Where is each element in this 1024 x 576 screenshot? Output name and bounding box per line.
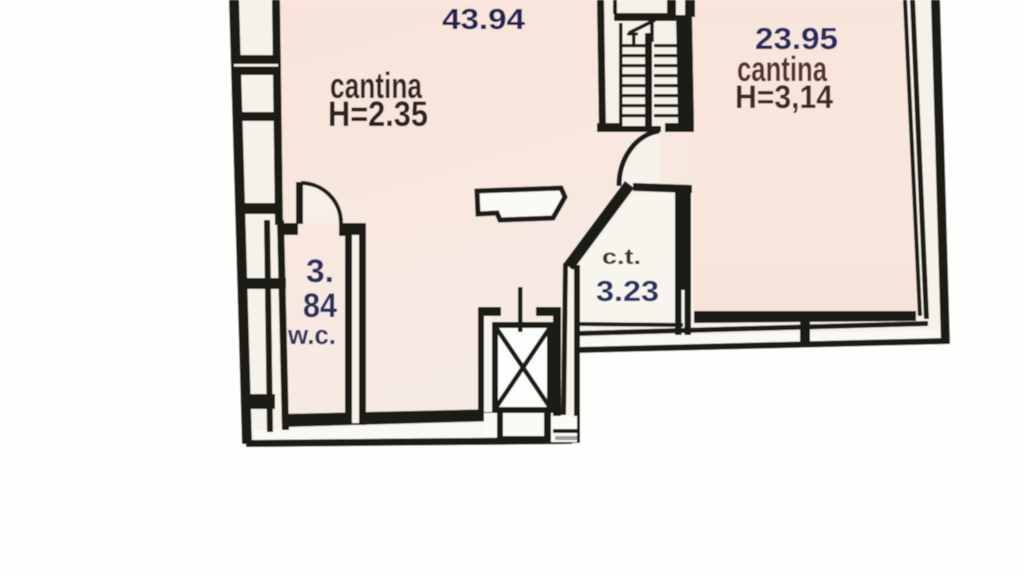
svg-text:43.94: 43.94 <box>442 4 525 36</box>
svg-text:H=2.35: H=2.35 <box>328 95 428 134</box>
svg-text:c.t.: c.t. <box>602 246 641 269</box>
svg-text:H=3,14: H=3,14 <box>735 79 833 115</box>
svg-text:3.: 3. <box>306 253 334 289</box>
svg-text:3.23: 3.23 <box>596 276 659 308</box>
svg-text:w.c.: w.c. <box>287 320 336 350</box>
